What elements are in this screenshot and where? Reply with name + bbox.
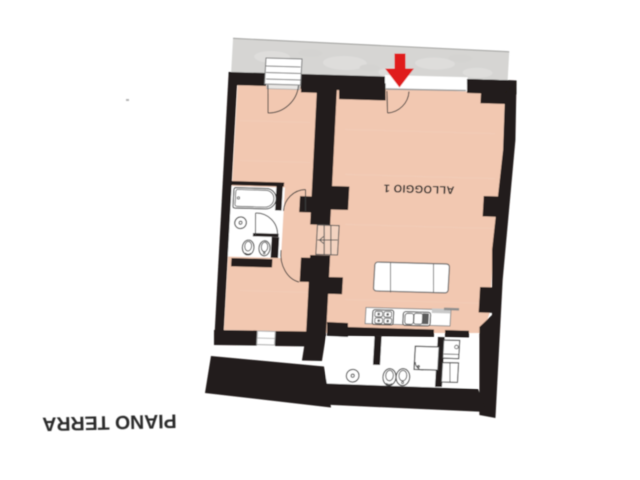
svg-text:PIANO TERRA: PIANO TERRA	[42, 410, 177, 435]
svg-text:ALLOGGIO 1: ALLOGGIO 1	[383, 182, 454, 196]
